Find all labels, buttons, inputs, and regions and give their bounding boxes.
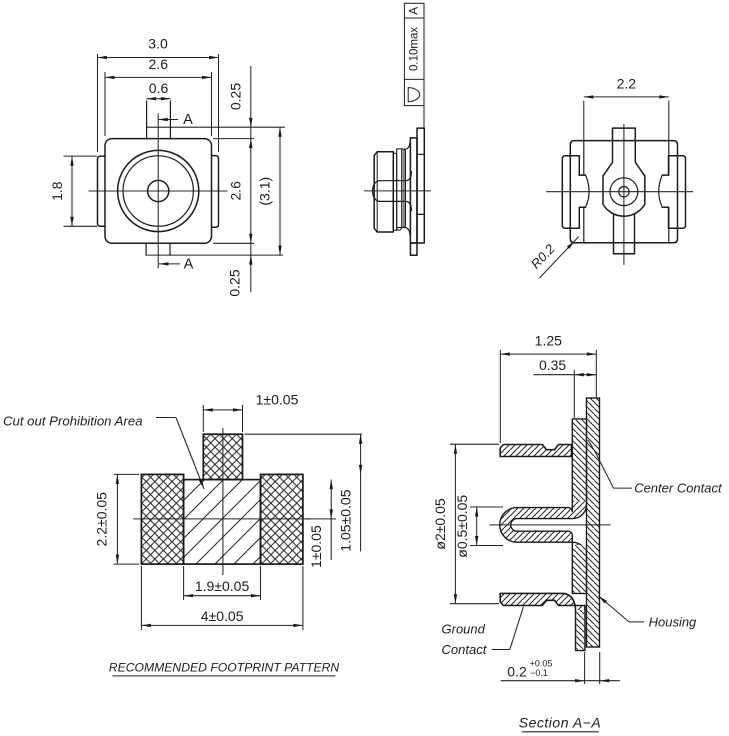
- svg-text:Center Contact: Center Contact: [634, 481, 723, 496]
- svg-text:4±0.05: 4±0.05: [201, 608, 244, 624]
- svg-text:2.6: 2.6: [149, 56, 169, 72]
- svg-text:0.35: 0.35: [539, 357, 566, 373]
- svg-text:2.6: 2.6: [228, 181, 244, 201]
- svg-text:Contact: Contact: [442, 642, 488, 657]
- svg-text:0.2: 0.2: [507, 664, 527, 680]
- svg-text:Ground: Ground: [442, 622, 486, 637]
- svg-text:ø2±0.05: ø2±0.05: [432, 498, 448, 549]
- svg-text:1.25: 1.25: [535, 333, 562, 349]
- svg-text:+0.05: +0.05: [530, 659, 553, 669]
- svg-text:0.10max: 0.10max: [409, 27, 421, 71]
- svg-text:1.8: 1.8: [49, 181, 65, 201]
- svg-text:0.25: 0.25: [228, 83, 244, 110]
- svg-text:2.2: 2.2: [617, 75, 637, 91]
- svg-text:A: A: [184, 257, 194, 273]
- svg-text:A: A: [183, 112, 193, 128]
- svg-text:1.05±0.05: 1.05±0.05: [337, 489, 353, 551]
- svg-text:ø0.5±0.05: ø0.5±0.05: [454, 495, 470, 558]
- svg-text:0.6: 0.6: [149, 80, 169, 96]
- svg-text:A: A: [407, 7, 421, 15]
- svg-text:(3.1): (3.1): [257, 177, 273, 206]
- svg-text:1±0.05: 1±0.05: [308, 525, 324, 568]
- svg-text:Cut out Prohibition Area: Cut out Prohibition Area: [3, 413, 143, 428]
- svg-text:RECOMMENDED FOOTPRINT PATTERN: RECOMMENDED FOOTPRINT PATTERN: [109, 660, 340, 674]
- svg-text:Housing: Housing: [649, 614, 697, 629]
- svg-text:1±0.05: 1±0.05: [256, 392, 299, 408]
- svg-text:3.0: 3.0: [148, 36, 168, 52]
- svg-text:2.2±0.05: 2.2±0.05: [93, 492, 109, 547]
- svg-text:1.9±0.05: 1.9±0.05: [195, 578, 250, 594]
- svg-text:−0.1: −0.1: [530, 668, 548, 678]
- svg-text:Section A−A: Section A−A: [519, 715, 601, 731]
- svg-text:0.25: 0.25: [227, 269, 243, 296]
